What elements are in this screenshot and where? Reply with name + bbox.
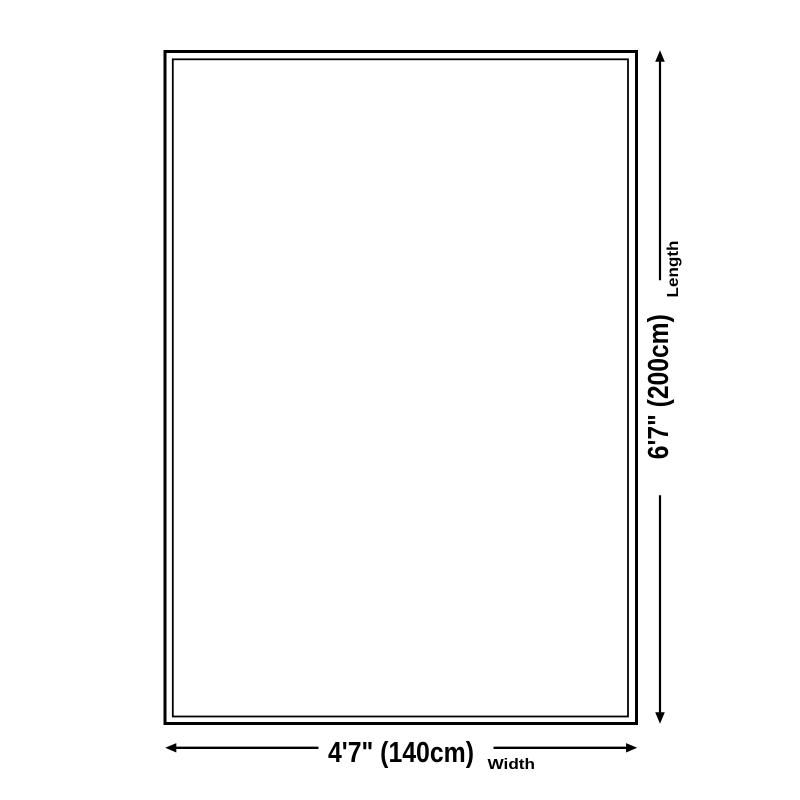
svg-text:Length: Length [665, 241, 682, 298]
svg-text:Width: Width [488, 756, 536, 773]
svg-text:4'7" (140cm): 4'7" (140cm) [328, 737, 474, 769]
svg-text:6'7" (200cm): 6'7" (200cm) [643, 314, 675, 459]
